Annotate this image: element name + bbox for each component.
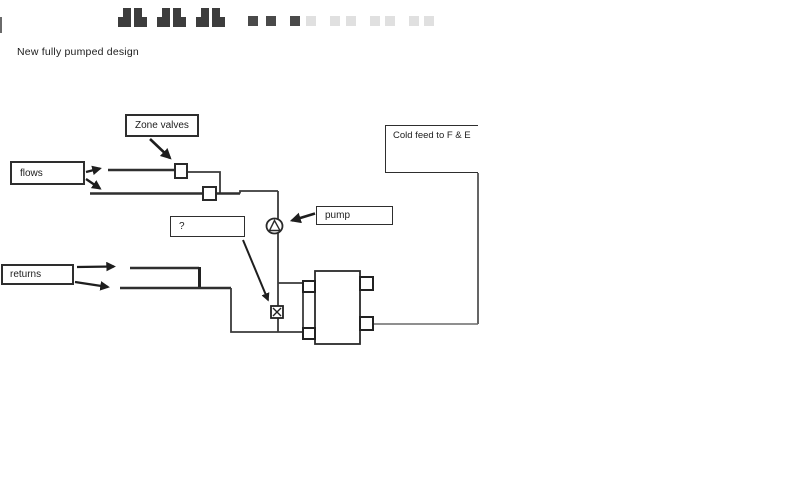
zone-valve-icon [175,164,187,178]
return-feed-pipe [231,288,304,332]
question-arrow [243,240,268,300]
bypass-valve-icon [271,306,283,318]
zone-valves-label: Zone valves [125,114,199,137]
paint-diagram-canvas: New fully pumped design [0,0,800,500]
flow-pipe-lower-right [240,191,278,194]
returns-arrow-upper [77,267,114,268]
cylinder-stub-upper-left [303,281,315,292]
flows-label-text: flows [20,168,43,179]
flows-arrow-upper [86,169,100,173]
flows-label: flows [10,161,85,185]
pump-label: pump [316,206,393,225]
pump-label-text: pump [325,210,350,221]
cylinder-stub-lower-right [360,317,373,330]
pump-arrow [292,214,315,221]
returns-arrow-lower [75,282,108,287]
diagram-svg [0,0,800,500]
zone-valves-arrow [150,139,170,158]
returns-label-text: returns [10,269,41,280]
cold-feed-label-text: Cold feed to F & E [393,130,471,141]
cylinder [315,271,360,344]
question-label: ? [170,216,245,237]
question-label-text: ? [179,221,185,232]
zone-valves-label-text: Zone valves [135,120,189,131]
zone-valve-icon [203,187,216,200]
cylinder-stub-lower-left [303,328,315,339]
returns-label: returns [1,264,74,285]
pump-icon [267,219,283,234]
cylinder-stub-upper-right [360,277,373,290]
cold-feed-label: Cold feed to F & E [385,125,478,173]
flows-arrow-lower [86,179,100,189]
